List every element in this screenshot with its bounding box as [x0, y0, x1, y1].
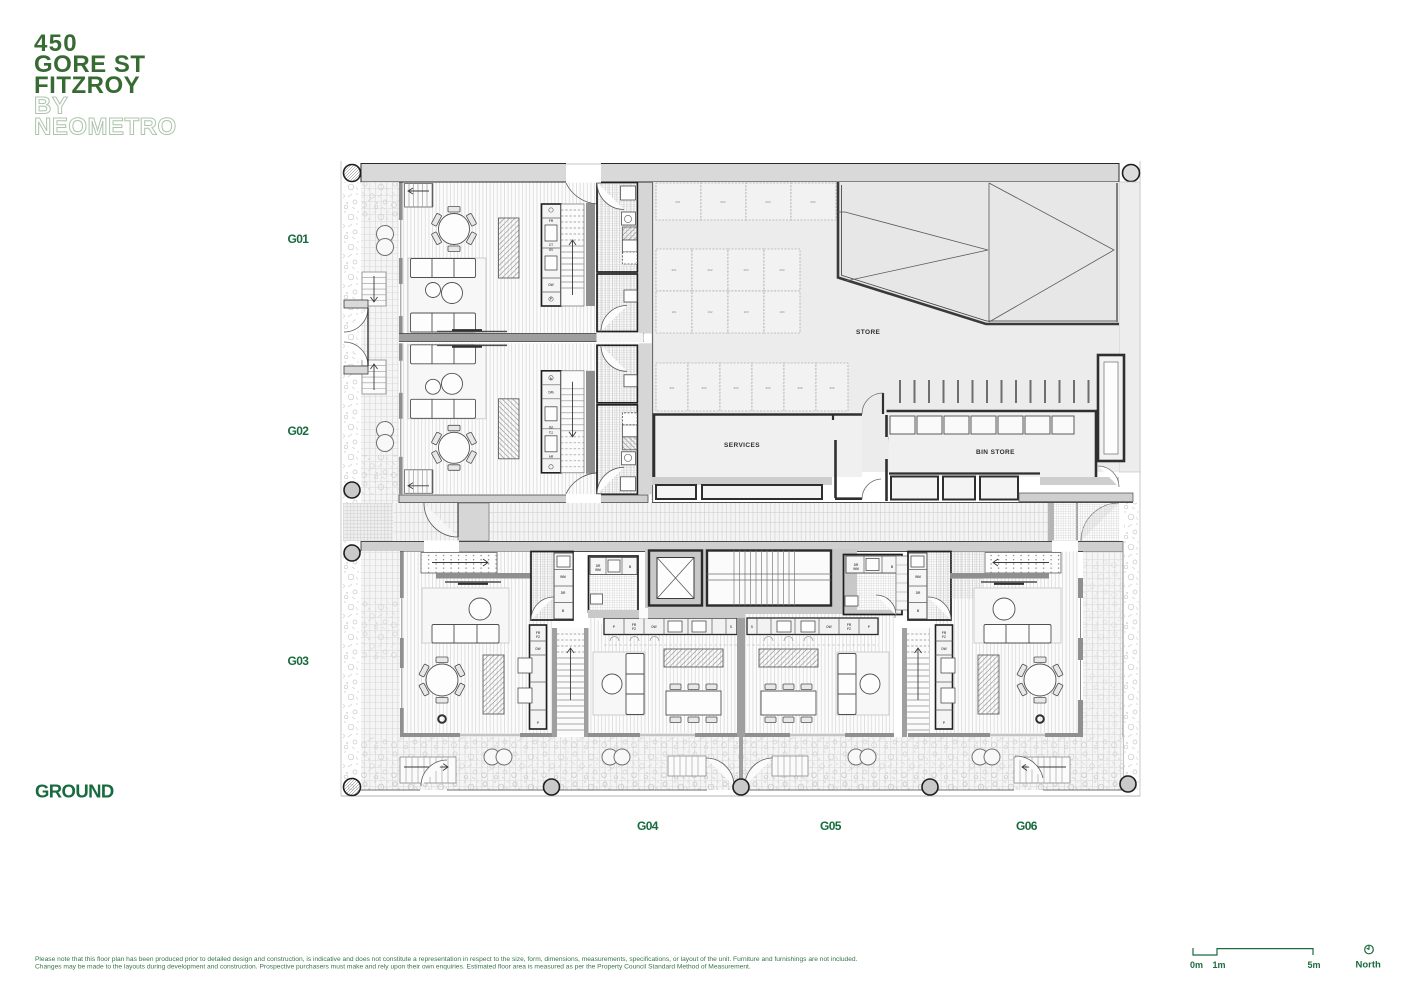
svg-text:CT: CT [549, 243, 553, 247]
svg-text:306: 306 [829, 386, 834, 390]
svg-text:WM: WM [560, 575, 566, 579]
svg-text:101: 101 [671, 310, 676, 314]
svg-text:NEOMETRO: NEOMETRO [34, 114, 177, 141]
svg-text:FR: FR [549, 219, 554, 223]
svg-text:STORE: STORE [856, 329, 881, 336]
svg-text:FZ: FZ [847, 627, 851, 631]
svg-text:BIN STORE: BIN STORE [976, 449, 1015, 456]
svg-text:001: 001 [675, 200, 680, 204]
svg-text:104: 104 [779, 310, 784, 314]
svg-text:DR: DR [561, 591, 566, 595]
svg-text:G06: G06 [1016, 819, 1038, 833]
svg-text:0m: 0m [1190, 960, 1203, 970]
svg-text:004: 004 [810, 200, 815, 204]
svg-text:S: S [730, 625, 732, 629]
svg-text:G01: G01 [288, 232, 310, 246]
svg-text:DW: DW [651, 625, 656, 629]
svg-text:1m: 1m [1213, 960, 1226, 970]
svg-text:GROUND: GROUND [35, 781, 114, 802]
svg-text:201: 201 [671, 268, 676, 272]
svg-text:Please note that this floor pl: Please note that this floor plan has bee… [35, 956, 858, 963]
svg-text:303: 303 [733, 386, 738, 390]
svg-text:DW: DW [535, 647, 540, 651]
svg-text:DW: DW [826, 625, 831, 629]
svg-text:FZ: FZ [942, 635, 946, 639]
svg-text:G05: G05 [820, 819, 842, 833]
svg-text:302: 302 [701, 386, 706, 390]
svg-text:002: 002 [720, 200, 725, 204]
svg-text:SERVICES: SERVICES [724, 442, 760, 449]
svg-text:203: 203 [743, 268, 748, 272]
svg-text:WM: WM [853, 567, 859, 571]
svg-text:304: 304 [765, 386, 770, 390]
svg-text:FZ: FZ [632, 627, 636, 631]
svg-text:S: S [751, 625, 753, 629]
svg-text:Changes may be made to the lay: Changes may be made to the layouts durin… [35, 964, 751, 971]
svg-text:204: 204 [779, 268, 784, 272]
svg-text:003: 003 [765, 200, 770, 204]
svg-text:5m: 5m [1308, 960, 1321, 970]
svg-text:305: 305 [797, 386, 802, 390]
svg-text:G02: G02 [288, 424, 310, 438]
svg-text:WM: WM [595, 568, 601, 572]
svg-text:North: North [1356, 960, 1382, 971]
svg-text:102: 102 [707, 310, 712, 314]
svg-text:FZ: FZ [536, 635, 540, 639]
svg-text:G04: G04 [637, 819, 659, 833]
svg-text:103: 103 [743, 310, 748, 314]
svg-text:DW: DW [941, 647, 946, 651]
svg-text:301: 301 [669, 386, 674, 390]
svg-text:G03: G03 [288, 654, 310, 668]
svg-text:DW: DW [548, 283, 553, 287]
svg-text:DR: DR [916, 591, 921, 595]
svg-text:WM: WM [915, 575, 921, 579]
svg-text:202: 202 [707, 268, 712, 272]
